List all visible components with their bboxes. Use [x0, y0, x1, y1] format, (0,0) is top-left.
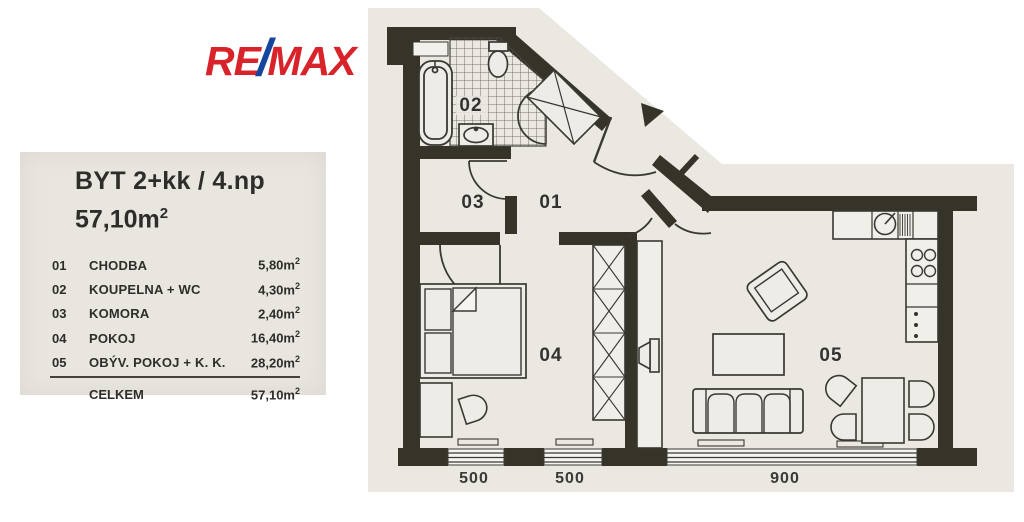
bathtub — [419, 61, 452, 145]
coffee-table — [713, 334, 784, 375]
dining-chair — [909, 414, 934, 440]
sofa — [693, 389, 803, 433]
window-900 — [667, 449, 917, 465]
wall-unit — [637, 241, 662, 448]
dining-chair — [831, 414, 856, 440]
dresser — [420, 383, 452, 437]
window-500-b — [544, 449, 602, 465]
kitchen-counter-side — [906, 239, 938, 342]
room-label-bathroom: 02 — [459, 95, 482, 116]
dimension-label: 900 — [770, 470, 800, 487]
dimension-label: 500 — [555, 470, 585, 487]
dining-table — [862, 378, 904, 443]
room-label-storage: 03 — [461, 192, 484, 213]
room-label-bedroom: 04 — [539, 345, 562, 366]
toilet — [489, 42, 509, 77]
kitchen-counter-top — [833, 211, 938, 239]
floor-plan: 02 03 01 04 05 500 500 900 — [0, 0, 1024, 522]
dimension-label: 500 — [459, 470, 489, 487]
wall-niche — [413, 42, 448, 56]
bedroom-wardrobe — [593, 245, 625, 420]
washbasin — [459, 124, 493, 146]
double-bed — [420, 284, 526, 378]
dining-chair — [909, 381, 934, 407]
room-label-living: 05 — [819, 345, 842, 366]
window-500-a — [448, 449, 504, 465]
room-label-hallway: 01 — [539, 192, 562, 213]
